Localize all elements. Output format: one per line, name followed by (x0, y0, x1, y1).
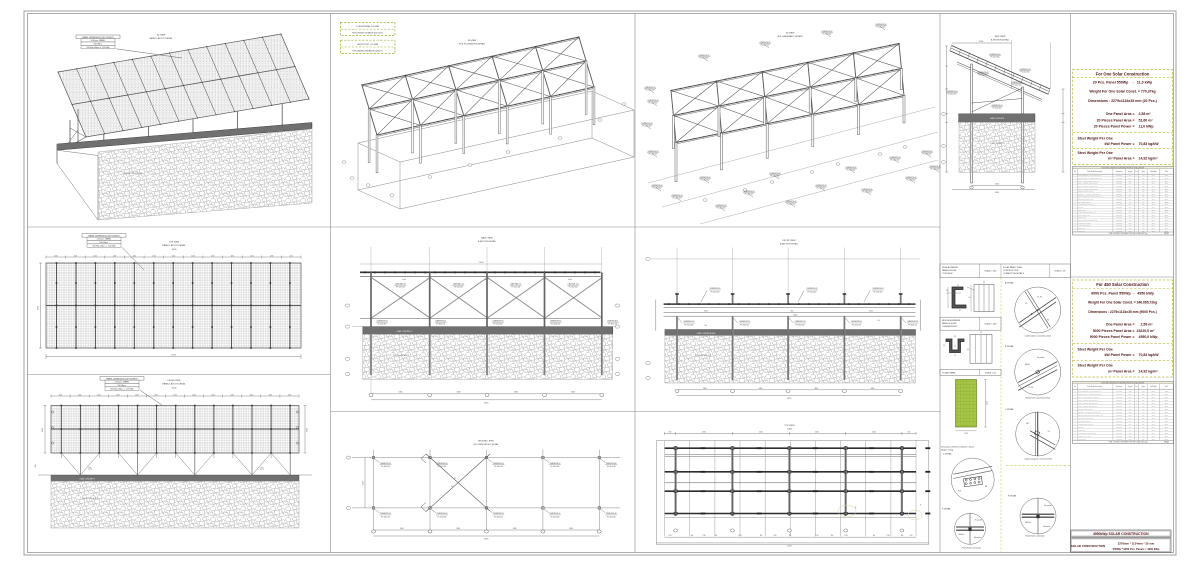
svg-text:223,2: 223,2 (1165, 194, 1168, 196)
svg-text:223,2: 223,2 (1165, 421, 1168, 423)
svg-text:F1, F5: F1, F5 (1037, 296, 1042, 298)
svg-text:55,81: 55,81 (1152, 406, 1155, 408)
svg-text:4060: 4060 (759, 432, 763, 434)
svg-text:PANEL LAYOUT DETAIL: PANEL LAYOUT DETAIL (163, 244, 187, 247)
svg-text:SOLAR PANEL STEEL: SOLAR PANEL STEEL (1003, 266, 1022, 269)
svg-text:PC 40x4 100: PC 40x4 100 (863, 191, 872, 193)
svg-text:MIDDLE ALUMINIUM: MIDDLE ALUMINIUM (942, 319, 961, 322)
svg-text:3480: 3480 (814, 388, 818, 390)
svg-text:GROUND LEVEL: GROUND LEVEL (478, 440, 495, 442)
svg-text:3480: 3480 (571, 391, 575, 393)
svg-text:223,2: 223,2 (1165, 215, 1168, 217)
svg-text:1,55: 1,55 (1142, 391, 1145, 393)
svg-text:1,55: 1,55 (1142, 199, 1145, 201)
svg-text:20 Pcs. Panel 550Wp → 11,0: 20 Pcs. Panel 550Wp → 11,0 kWp (1093, 80, 1153, 84)
svg-text:Omega Profile: Omega Profile (1078, 217, 1086, 219)
svg-text:55,81: 55,81 (1152, 403, 1155, 405)
svg-text:1/100: 1/100 (172, 249, 177, 251)
svg-text:3480: 3480 (456, 528, 460, 530)
svg-text:1,55: 1,55 (1142, 186, 1145, 188)
svg-text:4950,0 kWp: 4950,0 kWp (1139, 335, 1158, 339)
svg-text:14,92 kg/m²: 14,92 kg/m² (1139, 369, 1159, 373)
svg-text:55,81: 55,81 (1152, 199, 1155, 201)
svg-text:PC 40x4 100: PC 40x4 100 (649, 102, 658, 104)
svg-text:LONGITUDINAL COLUMN: LONGITUDINAL COLUMN (356, 25, 379, 28)
svg-text:1134: 1134 (173, 394, 177, 396)
svg-text:PC 40x4 100: PC 40x4 100 (494, 516, 503, 518)
svg-text:55,81: 55,81 (1152, 391, 1155, 393)
svg-text:4x65: 4x65 (402, 279, 406, 281)
svg-text:223,2: 223,2 (1165, 228, 1168, 230)
svg-text:1134: 1134 (154, 394, 158, 396)
svg-text:223,2: 223,2 (1165, 415, 1168, 417)
svg-text:100x100x3: 100x100x3 (1116, 427, 1122, 429)
svg-text:2268: 2268 (38, 306, 40, 310)
svg-text:13920: 13920 (484, 402, 489, 404)
svg-text:3480: 3480 (399, 391, 403, 393)
svg-text:6000: 6000 (1129, 409, 1132, 411)
svg-text:6000: 6000 (1129, 194, 1132, 196)
svg-text:223,2: 223,2 (1165, 427, 1168, 429)
svg-text:6000: 6000 (1129, 415, 1132, 417)
svg-text:1,55: 1,55 (1142, 223, 1145, 225)
svg-text:100x100x3: 100x100x3 (1116, 223, 1122, 225)
svg-text:3480: 3480 (400, 528, 404, 530)
svg-text:PC 40x4 100: PC 40x4 100 (823, 33, 832, 35)
svg-text:PILE DRIVING DISTANCE H=170: PILE DRIVING DISTANCE H=1700mm (352, 32, 384, 35)
svg-text:100x100x3: 100x100x3 (1116, 403, 1122, 405)
svg-text:1,55: 1,55 (1142, 415, 1145, 417)
svg-text:2,58 m²: 2,58 m² (1141, 323, 1154, 327)
svg-text:FRONT VIEW: FRONT VIEW (782, 240, 795, 242)
svg-text:2279: 2279 (987, 401, 989, 405)
svg-text:1,55: 1,55 (1142, 209, 1145, 211)
svg-text:20: 20 (943, 345, 945, 347)
svg-text:4060: 4060 (869, 310, 873, 312)
svg-text:6000: 6000 (1129, 217, 1132, 219)
svg-text:PANEL DIMENSION (20 PCS/SET): PANEL DIMENSION (20 PCS/SET) (82, 36, 114, 39)
svg-text:PC 40x4 100: PC 40x4 100 (653, 187, 662, 189)
svg-text:22: 22 (954, 355, 956, 357)
svg-text:6000: 6000 (1129, 212, 1132, 214)
svg-text:100x100x3: 100x100x3 (1116, 212, 1122, 214)
svg-text:550 Wp x20pcs = 11,0 kWp: 550 Wp x20pcs = 11,0 kWp (92, 246, 115, 248)
svg-text:223,2: 223,2 (1165, 209, 1168, 211)
svg-text:F DETAIL: F DETAIL (1008, 495, 1018, 498)
svg-text:F2: F2 (1025, 303, 1027, 305)
svg-text:1,55: 1,55 (1142, 175, 1145, 177)
svg-text:PANEL DIMENSION (20 PCS/SET): PANEL DIMENSION (20 PCS/SET) (88, 234, 120, 237)
svg-text:1,55: 1,55 (1142, 424, 1145, 426)
svg-text:223,2: 223,2 (1165, 175, 1168, 177)
svg-text:PC 40x4 100: PC 40x4 100 (700, 57, 709, 59)
svg-text:A SECTION DETAIL: A SECTION DETAIL (780, 242, 799, 245)
svg-text:6000: 6000 (1129, 424, 1132, 426)
svg-text:1,55: 1,55 (1142, 183, 1145, 185)
svg-text:55,81: 55,81 (1152, 212, 1155, 214)
svg-text:1,55: 1,55 (1142, 412, 1145, 414)
svg-text:55,81: 55,81 (1152, 188, 1155, 190)
svg-text:PC 40x4 100: PC 40x4 100 (908, 324, 917, 326)
svg-text:6000: 6000 (1129, 418, 1132, 420)
svg-text:13920: 13920 (787, 398, 792, 400)
svg-text:1134: 1134 (172, 255, 176, 257)
svg-text:1134: 1134 (289, 255, 293, 257)
svg-text:3480: 3480 (457, 391, 461, 393)
svg-text:1134: 1134 (59, 394, 63, 396)
svg-text:SOLAR CONSTRUCTION: SOLAR CONSTRUCTION (1071, 544, 1105, 548)
svg-text:223,2: 223,2 (1165, 424, 1168, 426)
svg-text:6000: 6000 (1129, 436, 1132, 438)
svg-text:1134: 1134 (191, 255, 195, 257)
svg-text:6000: 6000 (1129, 183, 1132, 185)
svg-text:PANEL LAYOUT DETAIL: PANEL LAYOUT DETAIL (163, 383, 187, 386)
svg-text:223,2: 223,2 (1165, 412, 1168, 414)
svg-text:4060: 4060 (815, 432, 819, 434)
svg-text:1,55: 1,55 (1142, 394, 1145, 396)
svg-text:6000: 6000 (1129, 421, 1132, 423)
svg-text:2x10 pcs. PANEL: 2x10 pcs. PANEL (91, 39, 106, 42)
svg-text:Purlin L - 72x50x5, 80/80x4/5: Purlin L - 72x50x5, 80/80x4/5 6000 (1078, 400, 1098, 402)
svg-text:LEAN CONCRETE RISE: LEAN CONCRETE RISE (697, 332, 717, 335)
svg-text:Solar Panel 550Wp 2279x1134x35: Solar Panel 550Wp 2279x1134x35 (1078, 220, 1098, 222)
svg-text:PC 40x4 100: PC 40x4 100 (931, 168, 940, 170)
svg-text:PC 40x4 100: PC 40x4 100 (993, 107, 1002, 109)
svg-text:2268: 2268 (42, 428, 44, 432)
svg-text:Purlin L - 72x50x5, 80/80x5/5: Purlin L - 72x50x5, 80/80x5/5 6000 (1078, 186, 1098, 188)
svg-text:3480: 3480 (514, 391, 518, 393)
svg-text:35: 35 (959, 310, 961, 312)
svg-text:PC 40x4 100: PC 40x4 100 (796, 324, 805, 326)
svg-text:850: 850 (760, 535, 763, 537)
svg-text:1134: 1134 (93, 255, 97, 257)
svg-text:100x100x3: 100x100x3 (1116, 418, 1122, 420)
svg-text:6000: 6000 (1129, 204, 1132, 206)
svg-text:100x100x3: 100x100x3 (1116, 196, 1122, 198)
svg-text:(FULL ASSEMBLY DETAIL): (FULL ASSEMBLY DETAIL) (777, 35, 803, 38)
svg-text:223,2: 223,2 (1165, 391, 1168, 393)
svg-text:55,81: 55,81 (1152, 217, 1155, 219)
svg-text:PANEL HOLDER: PANEL HOLDER (942, 322, 957, 325)
svg-text:1134: 1134 (97, 394, 101, 396)
svg-text:55,81: 55,81 (1152, 194, 1155, 196)
svg-text:1,55: 1,55 (1142, 201, 1145, 203)
svg-text:Purlin L - 72x50x5, 80/80x5/5: Purlin L - 72x50x5, 80/80x5/5 6000 (1078, 403, 1098, 405)
svg-text:25: 25 (957, 285, 959, 287)
svg-text:1,55: 1,55 (1142, 436, 1145, 438)
svg-text:PC 40x4 100: PC 40x4 100 (907, 179, 916, 181)
svg-text:17040: 17040 (787, 545, 792, 547)
svg-text:LEAN CONCRETE: LEAN CONCRETE (396, 330, 412, 333)
svg-text:55,81: 55,81 (1152, 430, 1155, 432)
svg-text:1,55: 1,55 (1142, 207, 1145, 209)
svg-text:Steel Weight Per One: Steel Weight Per One (1078, 347, 1113, 351)
svg-text:100x100x3: 100x100x3 (1116, 194, 1122, 196)
svg-text:SOLAR PANEL: SOLAR PANEL (942, 371, 957, 374)
svg-text:1134: 1134 (113, 255, 117, 257)
svg-text:1134: 1134 (250, 255, 254, 257)
svg-text:PC 40x4 100: PC 40x4 100 (643, 125, 652, 127)
svg-text:55,81: 55,81 (1152, 415, 1155, 417)
svg-text:1134: 1134 (78, 394, 82, 396)
svg-text:100x100x3: 100x100x3 (1116, 215, 1122, 217)
svg-text:55,81: 55,81 (1152, 201, 1155, 203)
svg-text:100x100x3: 100x100x3 (1116, 204, 1122, 206)
svg-text:1,55: 1,55 (1142, 433, 1145, 435)
svg-text:m² Panel Area =: m² Panel Area = (1108, 369, 1134, 373)
svg-text:1134: 1134 (231, 255, 235, 257)
svg-text:1134: 1134 (135, 394, 139, 396)
svg-text:6000: 6000 (1129, 403, 1132, 405)
svg-text:1,55: 1,55 (1142, 196, 1145, 198)
svg-text:G.L.: G.L. (88, 467, 92, 469)
svg-text:6000: 6000 (1129, 199, 1132, 201)
svg-text:223,2: 223,2 (1165, 436, 1168, 438)
svg-text:14: 14 (954, 346, 956, 348)
svg-text:PILE FOUNDATION DETAIL: PILE FOUNDATION DETAIL (459, 43, 486, 46)
svg-text:FRONT VIEW: FRONT VIEW (167, 380, 180, 382)
svg-text:55,81: 55,81 (1152, 178, 1155, 180)
svg-text:F5: F5 (1048, 431, 1050, 433)
svg-text:1,55: 1,55 (1142, 397, 1145, 399)
svg-text:6000: 6000 (1129, 406, 1132, 408)
svg-text:Steel Weight Per One: Steel Weight Per One (1078, 363, 1113, 367)
svg-text:PC 40x4 100: PC 40x4 100 (438, 466, 447, 468)
svg-text:33: 33 (980, 332, 982, 334)
svg-text:28: 28 (954, 336, 956, 338)
svg-text:55,81: 55,81 (1152, 436, 1155, 438)
svg-text:M8x25m: M8x25m (959, 534, 966, 536)
svg-text:1,55: 1,55 (1142, 191, 1145, 193)
svg-text:PC 40x4 100: PC 40x4 100 (607, 516, 616, 518)
svg-text:PC 40x4 100: PC 40x4 100 (711, 291, 720, 293)
svg-text:Weight For One Solar Const. =: Weight For One Solar Const. = 770,37kg (1089, 90, 1155, 94)
svg-text:1,55: 1,55 (1142, 421, 1145, 423)
svg-text:9000 Pcs. Panel 550Wp → 4950: 9000 Pcs. Panel 550Wp → 4950 kWp (1091, 292, 1155, 296)
svg-text:55,81: 55,81 (1152, 223, 1155, 225)
svg-text:Solar Z Profile 40x28: Solar Z Profile 40x28 (1078, 215, 1090, 217)
svg-text:4950kWp SOLAR CONSTRUCTION: 4950kWp SOLAR CONSTRUCTION (1093, 532, 1149, 536)
svg-text:Column-Diagonal Connectin Deta: Column-Diagonal Connectin Detail (1024, 458, 1052, 461)
svg-text:6000: 6000 (1129, 433, 1132, 435)
svg-text:2x10 pcs. PANEL: 2x10 pcs. PANEL (97, 238, 112, 241)
svg-text:6000: 6000 (1129, 180, 1132, 182)
svg-text:223,2: 223,2 (1165, 406, 1168, 408)
svg-text:1,55: 1,55 (1142, 228, 1145, 230)
svg-text:1134: 1134 (116, 394, 120, 396)
svg-text:6000: 6000 (1129, 412, 1132, 414)
svg-text:PC 50x5 100: PC 50x5 100 (511, 287, 520, 289)
svg-text:55,81: 55,81 (1152, 225, 1155, 227)
svg-text:PC 40x4 100: PC 40x4 100 (979, 74, 988, 76)
svg-text:PC 40x4 100: PC 40x4 100 (852, 324, 861, 326)
svg-text:1,55: 1,55 (1142, 220, 1145, 222)
svg-text:PC 40x4 100: PC 40x4 100 (607, 466, 616, 468)
svg-text:"Z PROFILE": "Z PROFILE" (942, 273, 953, 275)
svg-text:1,55: 1,55 (1142, 188, 1145, 190)
svg-text:PC 40x4 100: PC 40x4 100 (551, 466, 560, 468)
svg-text:55,81: 55,81 (1152, 228, 1155, 230)
svg-text:100x100x3: 100x100x3 (1116, 436, 1122, 438)
svg-text:850: 850 (691, 535, 694, 537)
svg-text:CONNECTION DETAILS: CONNECTION DETAILS (1003, 272, 1025, 275)
svg-text:100x100x3: 100x100x3 (1116, 220, 1122, 222)
svg-text:1134: 1134 (269, 394, 273, 396)
svg-text:223,2: 223,2 (1165, 409, 1168, 411)
svg-text:100x100x3: 100x100x3 (1116, 183, 1122, 185)
svg-text:100x100x3: 100x100x3 (1116, 180, 1122, 182)
svg-text:Carrying Column - 177,8x5 80x8: Carrying Column - 177,8x5 80x80x5x5 mm (1078, 394, 1102, 396)
svg-text:55,81: 55,81 (1152, 394, 1155, 396)
svg-text:SHORT POST COLUMN: SHORT POST COLUMN (357, 44, 379, 46)
svg-text:55,81: 55,81 (1152, 207, 1155, 209)
svg-text:1134: 1134 (270, 255, 274, 257)
svg-text:800: 800 (669, 432, 672, 434)
svg-text:PC 40x4 100: PC 40x4 100 (923, 153, 932, 155)
svg-text:100x100x3: 100x100x3 (1116, 175, 1122, 177)
svg-text:100x100x3: 100x100x3 (1116, 225, 1122, 227)
svg-text:1,55: 1,55 (1142, 215, 1145, 217)
svg-text:PC 40x4 100: PC 40x4 100 (673, 197, 682, 199)
svg-text:3480: 3480 (513, 528, 517, 530)
svg-text:6000: 6000 (1129, 175, 1132, 177)
svg-text:223,2: 223,2 (1165, 217, 1168, 219)
svg-text:PC 40x4 100: PC 40x4 100 (685, 324, 694, 326)
svg-text:100x100x3: 100x100x3 (1116, 397, 1122, 399)
svg-text:34: 34 (983, 282, 985, 284)
svg-text:55,81: 55,81 (1152, 175, 1155, 177)
svg-text:26: 26 (946, 290, 948, 292)
svg-text:45°: 45° (454, 478, 457, 480)
svg-text:PC 40x4 100: PC 40x4 100 (494, 324, 503, 326)
svg-text:3480: 3480 (569, 528, 573, 530)
svg-text:17040: 17040 (793, 315, 797, 317)
svg-text:2268: 2268 (307, 428, 309, 432)
svg-text:55,81: 55,81 (1152, 433, 1155, 435)
svg-text:100x100x3: 100x100x3 (1116, 406, 1122, 408)
svg-text:100x100x3: 100x100x3 (1116, 178, 1122, 180)
svg-text:PILE DRIVING DISTANCE D=800: PILE DRIVING DISTANCE D=800mm (353, 49, 384, 52)
svg-text:1/100: 1/100 (787, 429, 792, 431)
svg-text:850: 850 (873, 535, 876, 537)
svg-text:Solar Z Profile 40x28: Solar Z Profile 40x28 (1078, 436, 1090, 438)
svg-text:TOP VIEW: TOP VIEW (784, 425, 794, 427)
svg-text:Fix pander: Fix pander (1044, 505, 1052, 507)
svg-text:One Panel Area =: One Panel Area = (1106, 112, 1135, 116)
svg-text:M8: M8 (985, 486, 987, 488)
svg-text:Purlin-Panel Connection: Purlin-Panel Connection (962, 547, 981, 550)
svg-text:Pcs: Pcs (1135, 171, 1138, 173)
svg-text:Dimensions: 2279mm x 1134mm x: Dimensions: 2279mm x 1134mm x 35mm (941, 447, 975, 449)
svg-text:100x100x3: 100x100x3 (1116, 186, 1122, 188)
svg-text:100x100x3: 100x100x3 (1116, 191, 1122, 193)
svg-text:M8x25m: M8x25m (1025, 522, 1032, 524)
svg-text:100x100x3: 100x100x3 (1116, 391, 1122, 393)
svg-text:PC 40x4 100: PC 40x4 100 (1021, 71, 1030, 73)
svg-text:Fix pander: Fix pander (975, 519, 983, 521)
svg-text:1,55: 1,55 (1142, 400, 1145, 402)
svg-text:223,2: 223,2 (1165, 418, 1168, 420)
svg-text:PC 40x4 100: PC 40x4 100 (381, 516, 390, 518)
svg-text:55,81: 55,81 (1152, 215, 1155, 217)
svg-text:PC 40x4 100: PC 40x4 100 (847, 169, 856, 171)
svg-text:PILE FOUNDATION: PILE FOUNDATION (989, 142, 1005, 145)
svg-text:m² Panel Area =: m² Panel Area = (1108, 157, 1134, 161)
svg-text:3480: 3480 (871, 388, 875, 390)
svg-text:23220,0 m²: 23220,0 m² (1137, 329, 1156, 333)
svg-text:PC 50x5 100: PC 50x5 100 (454, 287, 463, 289)
svg-text:4x65: 4x65 (568, 279, 572, 281)
svg-text:6000: 6000 (1129, 427, 1132, 429)
svg-text:Beam - 1 72x5x5, 80x80x4 6000: Beam - 1 72x5x5, 80x80x4 6000 mm (1078, 180, 1098, 182)
svg-text:SIDE VIEW: SIDE VIEW (995, 36, 1006, 38)
svg-text:PANEL DIMENSION (20 PCS/SET): PANEL DIMENSION (20 PCS/SET) (106, 377, 138, 380)
svg-text:640: 640 (35, 465, 37, 468)
svg-text:PC 40x4 100: PC 40x4 100 (551, 324, 560, 326)
svg-text:C DETAIL: C DETAIL (1005, 408, 1015, 411)
svg-text:550 Wp x20pcs = 11,0 kWp: 550 Wp x20pcs = 11,0 kWp (86, 47, 109, 49)
svg-text:55,81: 55,81 (1152, 191, 1155, 193)
svg-text:1760: 1760 (909, 535, 912, 537)
svg-text:PC 40x4 100: PC 40x4 100 (877, 26, 886, 28)
svg-text:55,81: 55,81 (1152, 421, 1155, 423)
svg-text:4160: 4160 (995, 192, 999, 194)
svg-text:1134: 1134 (288, 394, 292, 396)
svg-text:100x100x3: 100x100x3 (1116, 201, 1122, 203)
svg-text:6000: 6000 (1129, 430, 1132, 432)
svg-text:6000: 6000 (1129, 209, 1132, 211)
svg-text:2760: 2760 (363, 481, 365, 485)
svg-text:223,2: 223,2 (1165, 180, 1168, 182)
svg-text:1760: 1760 (702, 535, 705, 537)
svg-text:Weight For One Solar Const. =: Weight For One Solar Const. = 346.665,72… (1088, 300, 1157, 304)
svg-text:1134: 1134 (74, 255, 78, 257)
svg-text:100x100x3: 100x100x3 (1116, 207, 1122, 209)
svg-text:55,81: 55,81 (1152, 409, 1155, 411)
svg-text:PC 40x4 100: PC 40x4 100 (808, 291, 817, 293)
svg-text:223,2: 223,2 (1165, 225, 1168, 227)
svg-text:PC 40x4 100: PC 40x4 100 (701, 179, 710, 181)
svg-text:55,81: 55,81 (1152, 427, 1155, 429)
svg-text:A SECTION DETAIL: A SECTION DETAIL (991, 39, 1010, 42)
svg-text:100x100x3: 100x100x3 (1116, 433, 1122, 435)
svg-text:M8x25: M8x25 (1025, 364, 1030, 366)
svg-text:223,2: 223,2 (1165, 188, 1168, 190)
svg-text:9000 Pieces Panel Power =: 9000 Pieces Panel Power = (1090, 335, 1135, 339)
svg-text:Dimensions : 2279x1134x35 mm (: Dimensions : 2279x1134x35 mm (20 Pcs.) (1088, 99, 1157, 103)
svg-text:kW Panel Power =: kW Panel Power = (1104, 142, 1134, 146)
svg-text:1,55: 1,55 (1142, 212, 1145, 214)
svg-text:1,55: 1,55 (1142, 409, 1145, 411)
svg-text:14742: 14742 (171, 355, 176, 357)
svg-text:Dimensions : 2279x1134x35 mm (: Dimensions : 2279x1134x35 mm (9000 Pcs.) (1088, 310, 1156, 314)
svg-text:100x100x3: 100x100x3 (1116, 217, 1122, 219)
svg-text:6000: 6000 (1129, 223, 1132, 225)
svg-text:PC 40x4 100: PC 40x4 100 (874, 291, 883, 293)
svg-text:SCALE = 2b/1: SCALE = 2b/1 (984, 323, 996, 326)
svg-text:70,83 kg/kW: 70,83 kg/kW (1139, 142, 1160, 146)
svg-text:PC 40x4 100: PC 40x4 100 (494, 466, 503, 468)
svg-text:11: 11 (952, 297, 954, 299)
svg-text:223,2: 223,2 (1165, 196, 1168, 198)
svg-text:Weight: 27,5kg: Weight: 27,5kg (941, 449, 953, 452)
svg-text:70,83 kg/kW: 70,83 kg/kW (1139, 353, 1160, 357)
svg-text:55,81: 55,81 (1152, 412, 1155, 414)
svg-text:6000: 6000 (1129, 400, 1132, 402)
svg-text:A SECTION DETAIL: A SECTION DETAIL (478, 240, 497, 243)
svg-text:1,55: 1,55 (1142, 178, 1145, 180)
svg-text:6000: 6000 (1129, 178, 1132, 180)
